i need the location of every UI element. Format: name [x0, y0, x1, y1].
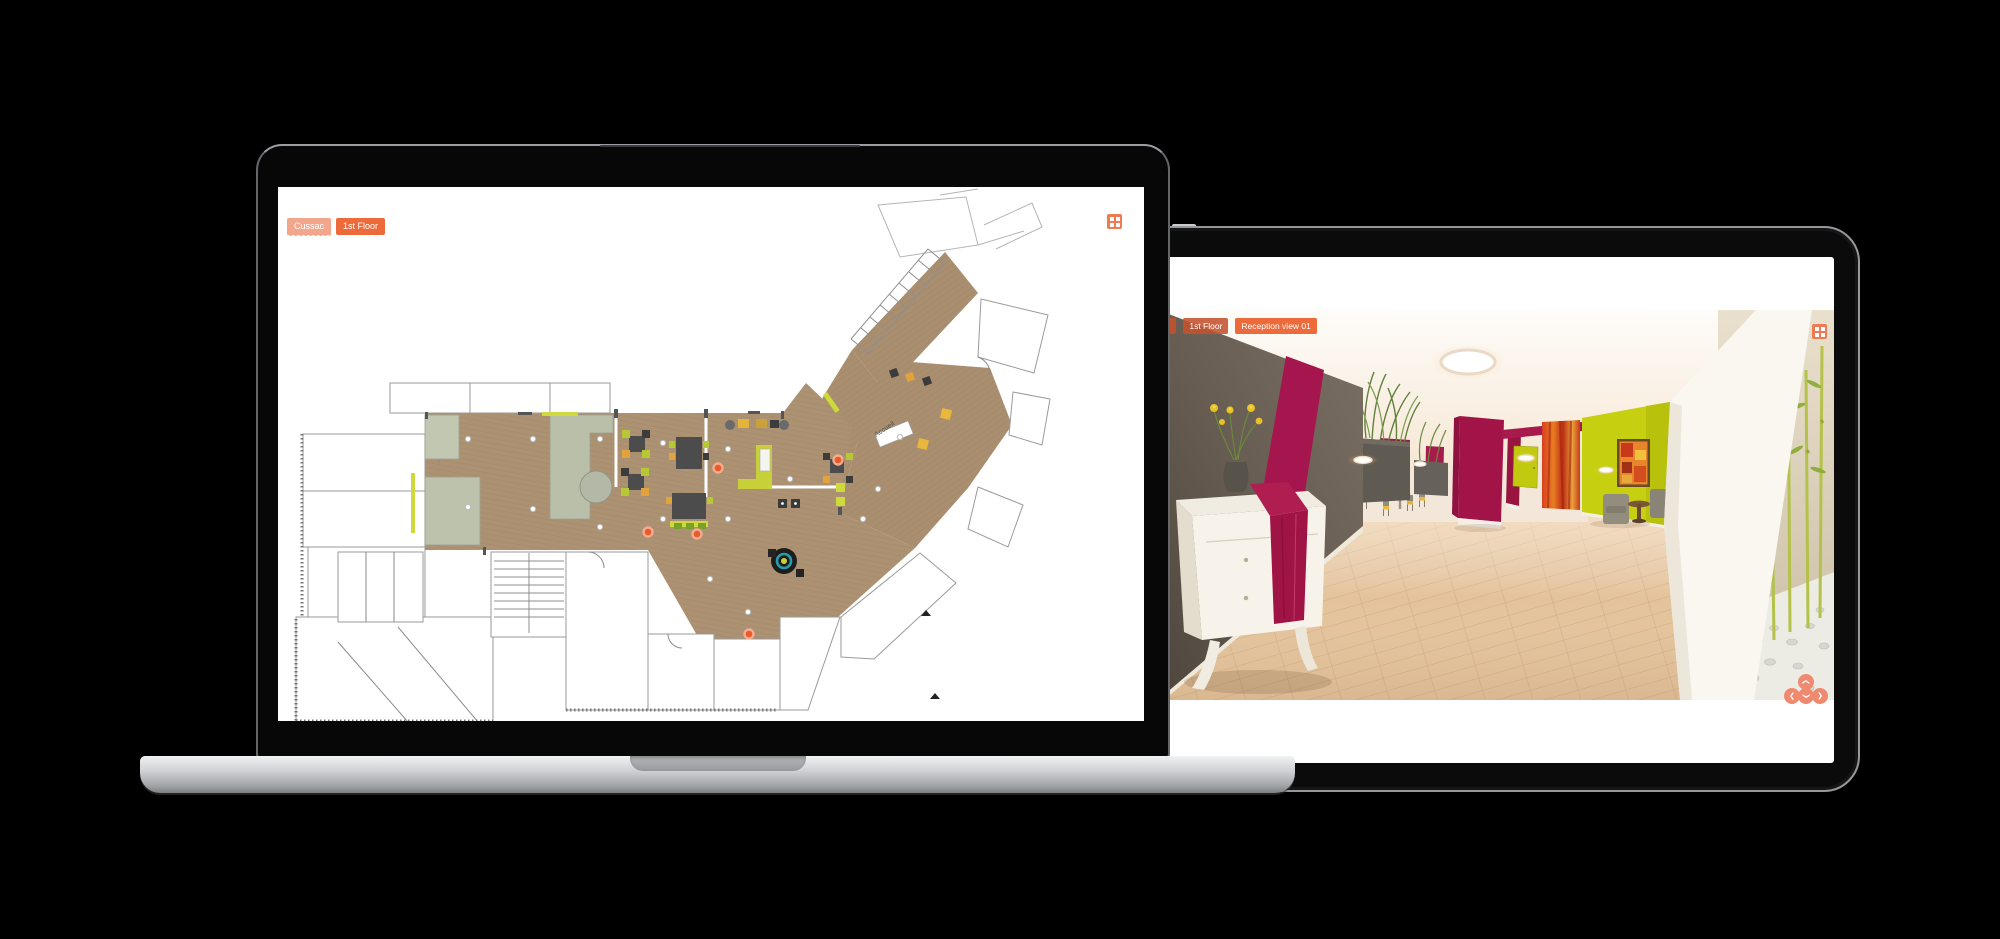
chevron-up-icon: ❮ — [1802, 679, 1810, 685]
wall-painting — [1617, 439, 1650, 487]
floor-button[interactable]: 1st Floor — [1183, 318, 1228, 334]
view-button[interactable]: Reception view 01 — [1235, 318, 1316, 334]
grid-menu-icon[interactable] — [1107, 214, 1122, 229]
hotspot-dot[interactable] — [693, 530, 702, 539]
laptop-screen: Accueil Cussac 1st Floor — [278, 187, 1144, 721]
laptop-base — [140, 756, 1295, 793]
floor-button[interactable]: 1st Floor — [336, 218, 385, 235]
floor-plan: Accueil — [278, 187, 1144, 721]
chevron-right-icon: ❮ — [1817, 692, 1823, 700]
hotspot-dot[interactable] — [714, 464, 723, 473]
hotspot-dot[interactable] — [745, 630, 754, 639]
laptop-base-notch — [630, 756, 806, 771]
laptop-hinge-detail — [600, 145, 860, 147]
laptop-toolbar: Cussac 1st Floor — [287, 218, 385, 236]
marketing-composite: Cussac 1st Floor Reception view 01 ❮ ❮ ❮… — [0, 0, 2000, 939]
hotspot-dot[interactable] — [644, 528, 653, 537]
project-button[interactable]: Cussac — [287, 218, 331, 236]
hotspot-dot[interactable] — [834, 456, 843, 465]
chevron-left-icon: ❮ — [1789, 692, 1795, 700]
3d-reception-scene — [1158, 310, 1834, 700]
exterior-outlines — [878, 189, 1042, 257]
chevron-down-icon: ❮ — [1802, 693, 1810, 699]
pan-right-button[interactable]: ❮ — [1812, 688, 1828, 704]
tablet-screen: Cussac 1st Floor Reception view 01 ❮ ❮ ❮… — [1158, 257, 1834, 763]
magenta-column — [1452, 416, 1506, 532]
grid-menu-icon[interactable] — [1812, 324, 1827, 339]
